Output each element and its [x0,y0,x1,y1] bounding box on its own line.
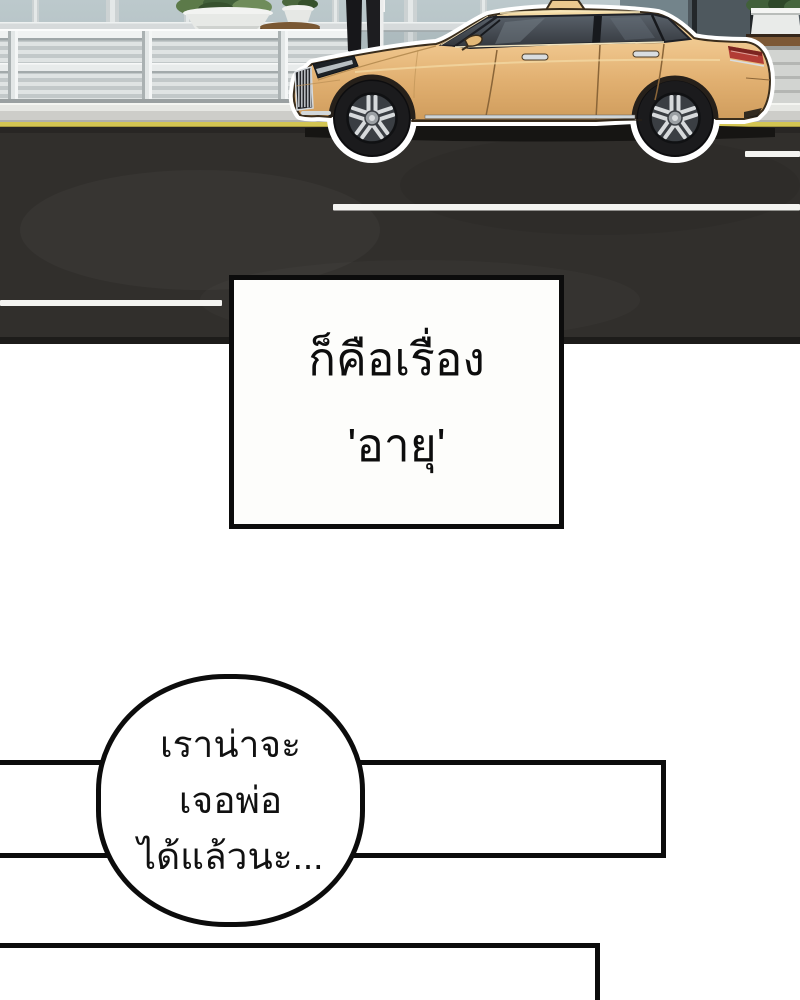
car-grille [295,67,313,110]
rocker-chrome-strip [425,115,635,119]
speech-bubble: เราน่าจะ เจอพ่อ ได้แล้วนะ... [96,674,365,927]
bubble-line-3: ได้แล้วนะ... [101,829,360,885]
lane-dash-bottom-left [0,300,222,306]
bubble-line-2: เจอพ่อ [101,773,360,829]
comic-page: ก็คือเรื่อง 'อายุ' เราน่าจะ เจอพ่อ ได้แล… [0,0,800,1000]
caption-box: ก็คือเรื่อง 'อายุ' [229,275,564,529]
caption-line-1: ก็คือเรื่อง [234,316,559,402]
bubble-line-1: เราน่าจะ [101,717,360,773]
next-panel-frame [0,943,600,1000]
lane-dash-top-right [745,151,800,157]
front-bumper-chrome [301,111,331,115]
lane-dash-middle [333,204,800,211]
front-door-handle [522,54,548,60]
hedge-planter-box [746,0,800,34]
rear-door-handle [633,51,659,57]
caption-line-2: 'อายุ' [234,402,559,488]
